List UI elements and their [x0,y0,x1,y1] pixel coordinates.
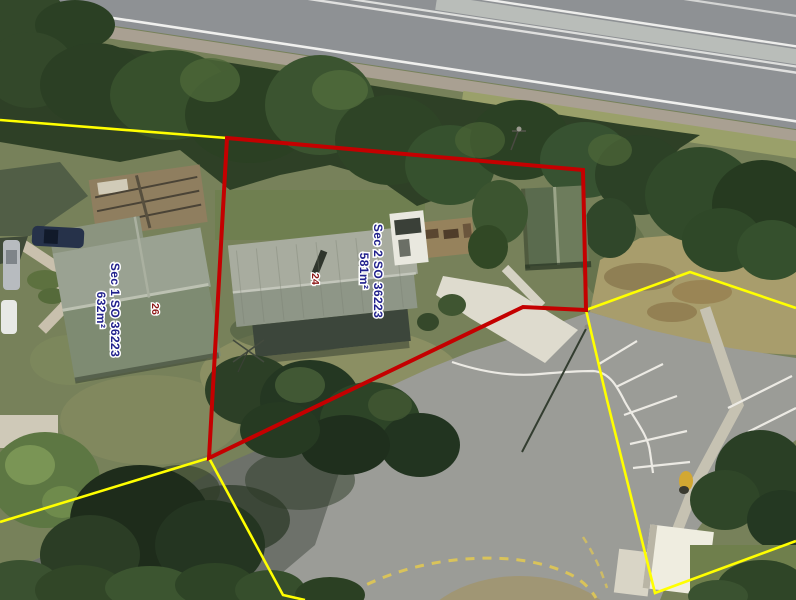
garage-roof [521,185,591,270]
aerial-map-canvas[interactable]: Sec 2 SO 36223 581m² Sec 1 SO 36223 632m… [0,0,796,600]
svg-text:24: 24 [309,273,321,285]
map-graphics: Sec 2 SO 36223 581m² Sec 1 SO 36223 632m… [0,0,796,600]
svg-text:Sec 1 SO 36223: Sec 1 SO 36223 [108,263,122,357]
svg-text:632m²: 632m² [94,292,108,329]
svg-text:581m²: 581m² [357,253,371,290]
svg-text:26: 26 [149,303,161,315]
conservatory [389,210,428,265]
house-number-26: 26 [149,303,161,315]
svg-text:Sec 2 SO 36223: Sec 2 SO 36223 [371,224,385,318]
house-number-24: 24 [309,273,321,285]
